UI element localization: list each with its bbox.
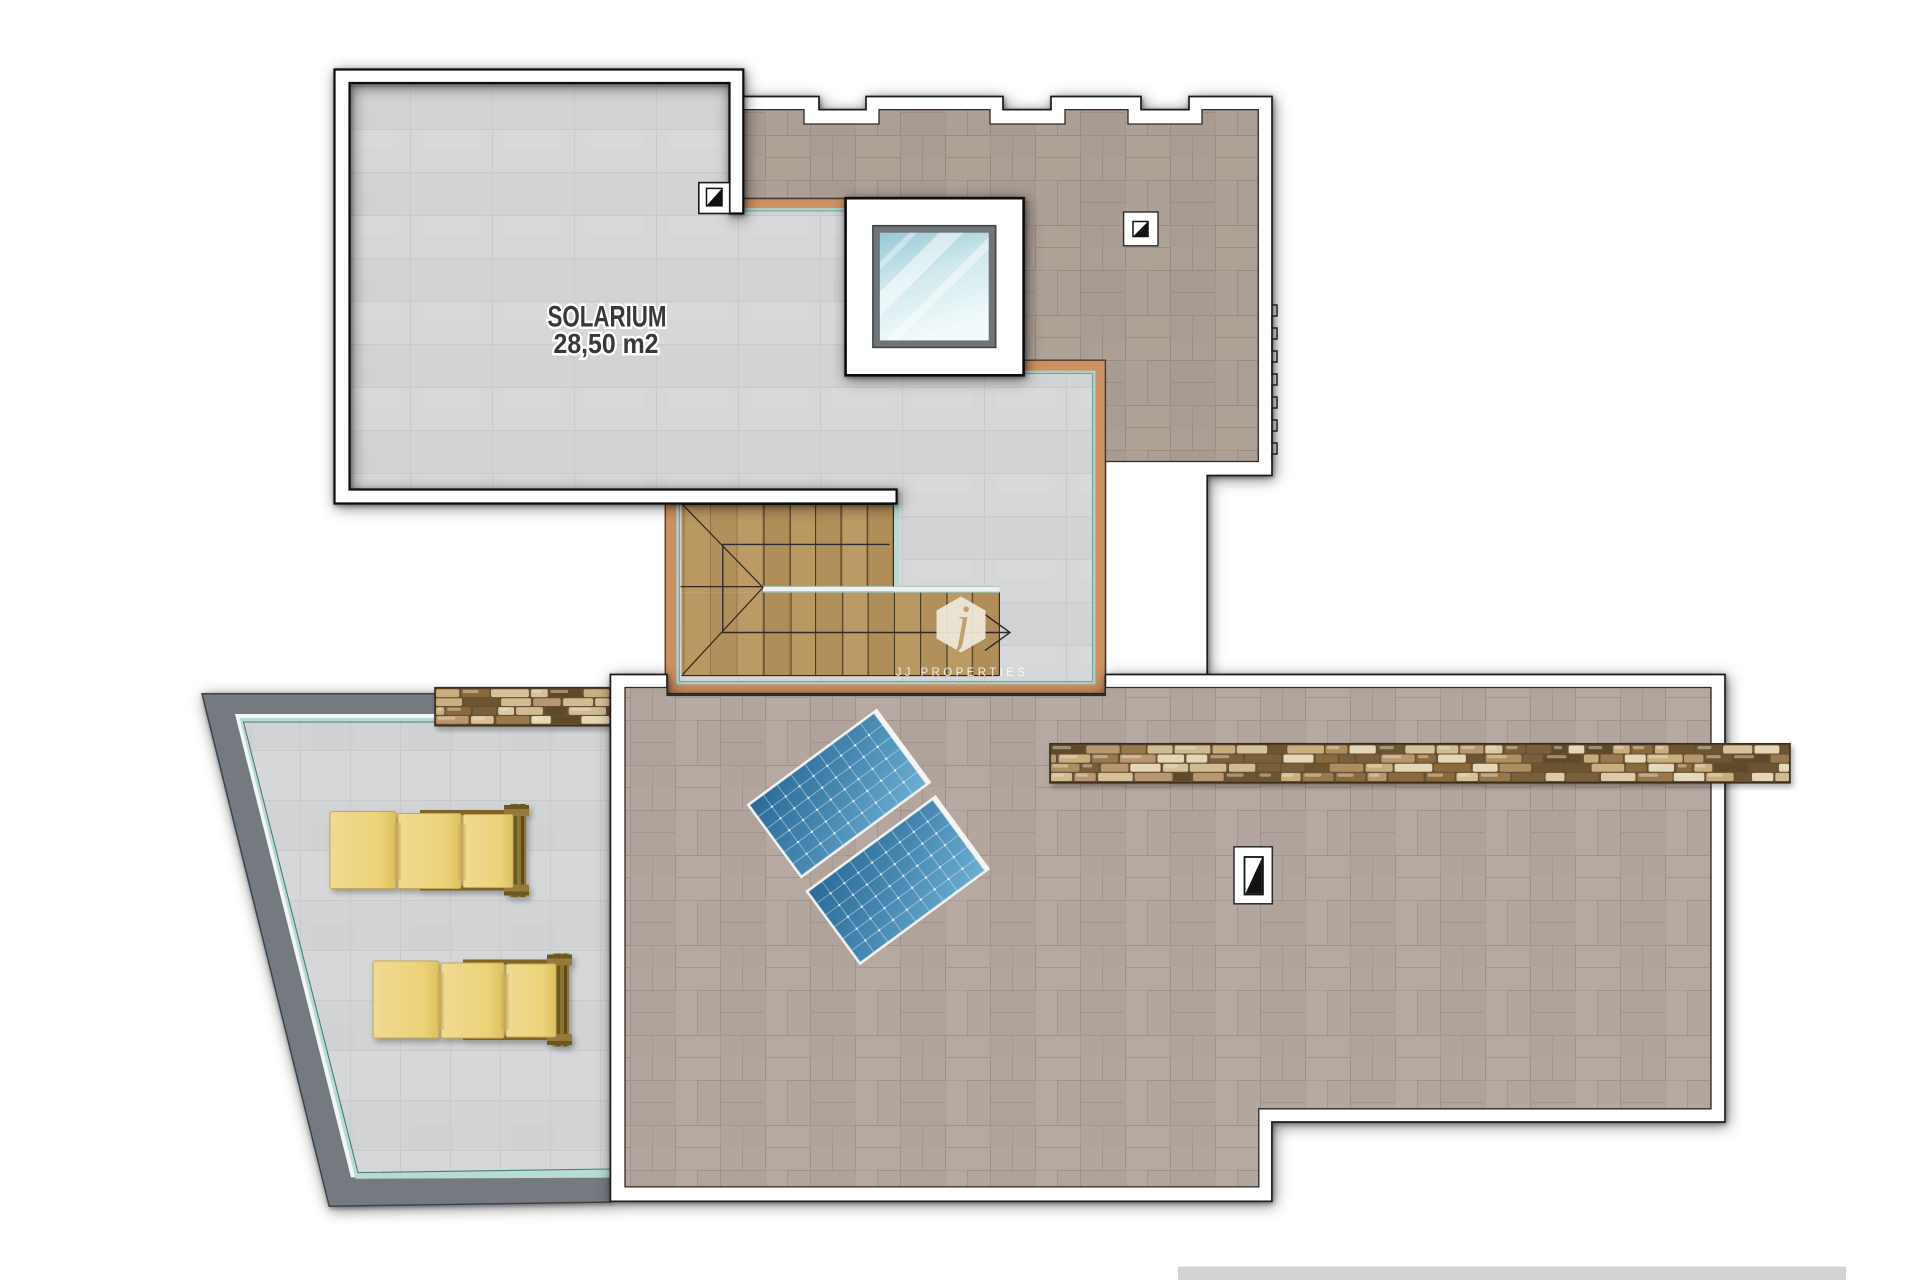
- svg-text:JJ PROPERTIES: JJ PROPERTIES: [896, 667, 1029, 679]
- svg-text:REAL ESTATE: REAL ESTATE: [929, 682, 995, 688]
- svg-text:28,50 m2: 28,50 m2: [554, 328, 659, 359]
